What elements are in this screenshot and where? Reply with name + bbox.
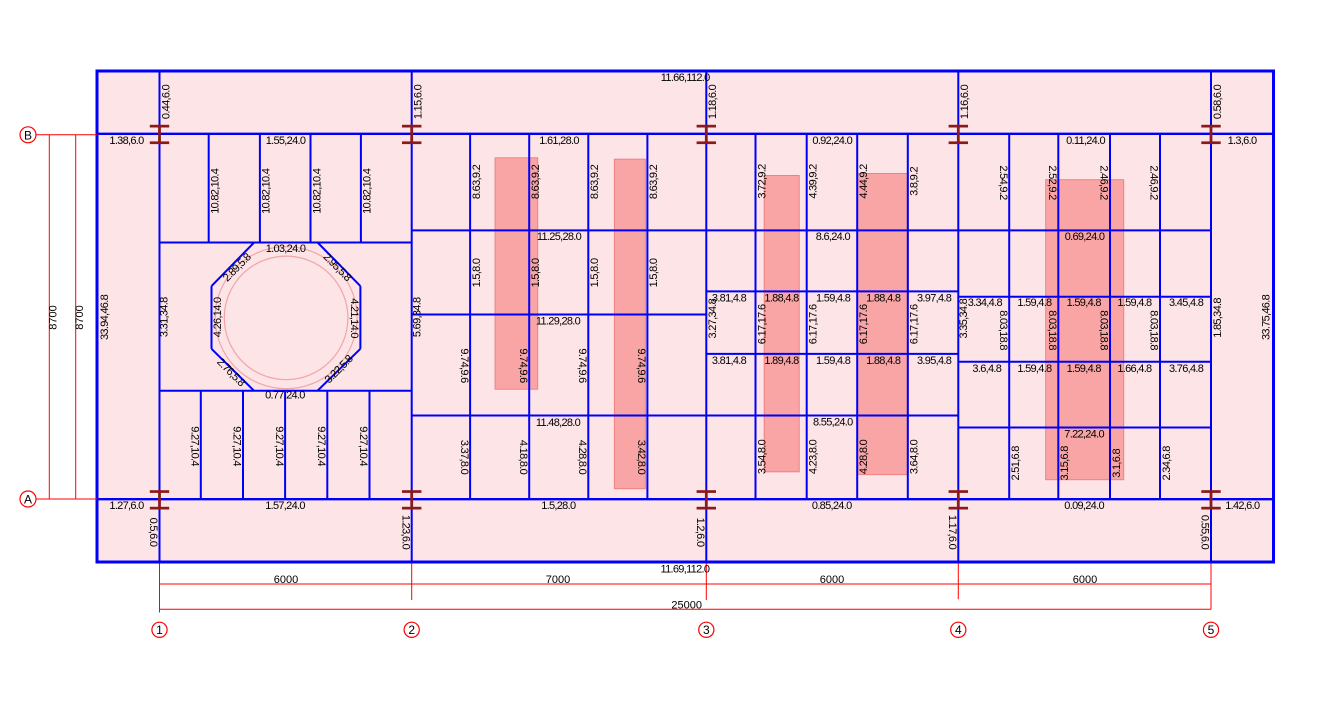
svg-text:3.34,4.8: 3.34,4.8: [968, 297, 1003, 309]
svg-text:2.54,9.2: 2.54,9.2: [997, 165, 1009, 200]
svg-text:1.59,4.8: 1.59,4.8: [816, 355, 851, 367]
svg-text:2: 2: [408, 623, 415, 637]
svg-text:3.31,34.8: 3.31,34.8: [159, 297, 171, 337]
svg-text:0.92,24.0: 0.92,24.0: [812, 135, 852, 147]
svg-text:8.03,18.8: 8.03,18.8: [1098, 310, 1110, 350]
svg-text:1.5,8.0: 1.5,8.0: [648, 258, 660, 287]
svg-text:11.25,28.0: 11.25,28.0: [537, 231, 582, 243]
svg-text:1.23,6.0: 1.23,6.0: [399, 515, 411, 550]
svg-text:3.72,9.2: 3.72,9.2: [756, 164, 768, 199]
svg-text:8.63,9.2: 8.63,9.2: [471, 164, 483, 199]
svg-text:6.17,17.6: 6.17,17.6: [808, 304, 820, 344]
svg-text:6.17,17.6: 6.17,17.6: [858, 304, 870, 344]
svg-text:1.57,24.0: 1.57,24.0: [265, 500, 305, 512]
svg-text:1.5,28.0: 1.5,28.0: [541, 500, 576, 512]
svg-text:10.82,10.4: 10.82,10.4: [261, 168, 273, 214]
svg-text:10.82,10.4: 10.82,10.4: [210, 168, 222, 214]
svg-text:1.18,6.0: 1.18,6.0: [707, 84, 719, 119]
svg-text:0.69,24.0: 0.69,24.0: [1065, 231, 1105, 243]
svg-text:1.59,4.8: 1.59,4.8: [1067, 297, 1102, 309]
svg-text:1.17,6.0: 1.17,6.0: [946, 515, 958, 550]
svg-text:33.75,46.8: 33.75,46.8: [1261, 294, 1273, 340]
svg-text:1: 1: [156, 623, 163, 637]
svg-text:0.55,6.0: 0.55,6.0: [1199, 515, 1211, 550]
svg-text:0.09,24.0: 0.09,24.0: [1064, 500, 1104, 512]
svg-text:4.23,8.0: 4.23,8.0: [808, 439, 820, 474]
svg-text:8.03,18.8: 8.03,18.8: [997, 310, 1009, 350]
svg-text:1.15,6.0: 1.15,6.0: [413, 84, 425, 119]
svg-text:0.77,24.0: 0.77,24.0: [265, 390, 305, 402]
svg-text:11.48,28.0: 11.48,28.0: [536, 417, 581, 429]
svg-text:8.55,24.0: 8.55,24.0: [813, 417, 853, 429]
svg-text:9.27,10.4: 9.27,10.4: [357, 426, 369, 466]
svg-text:3.76,4.8: 3.76,4.8: [1169, 363, 1204, 375]
svg-text:4.26,14.0: 4.26,14.0: [212, 297, 224, 337]
svg-text:1.59,4.8: 1.59,4.8: [1117, 297, 1152, 309]
svg-text:8700: 8700: [48, 305, 60, 329]
svg-text:9.27,10.4: 9.27,10.4: [231, 426, 243, 466]
svg-text:8.63,9.2: 8.63,9.2: [589, 164, 601, 199]
svg-text:4.28,8.0: 4.28,8.0: [858, 439, 870, 474]
svg-text:0.44,6.0: 0.44,6.0: [160, 84, 172, 119]
svg-text:9.74,9.6: 9.74,9.6: [458, 348, 470, 383]
svg-text:1.85,34.8: 1.85,34.8: [1212, 298, 1224, 338]
svg-text:11.69,112.0: 11.69,112.0: [661, 563, 710, 575]
svg-text:8.6,24.0: 8.6,24.0: [816, 231, 851, 243]
svg-text:0.58,6.0: 0.58,6.0: [1212, 84, 1224, 119]
svg-text:4.39,9.2: 4.39,9.2: [808, 164, 820, 199]
svg-text:1.3,6.0: 1.3,6.0: [1228, 135, 1257, 147]
svg-text:1.42,6.0: 1.42,6.0: [1225, 500, 1260, 512]
svg-text:1.88,4.8: 1.88,4.8: [866, 293, 901, 305]
svg-text:1.27,6.0: 1.27,6.0: [109, 500, 144, 512]
svg-text:1.61,28.0: 1.61,28.0: [539, 135, 579, 147]
svg-text:11.66,112.0: 11.66,112.0: [661, 72, 710, 84]
svg-text:1.5,8.0: 1.5,8.0: [530, 258, 542, 287]
svg-text:10.82,10.4: 10.82,10.4: [362, 168, 374, 214]
svg-text:11.29,28.0: 11.29,28.0: [536, 316, 581, 328]
svg-text:2.46,9.2: 2.46,9.2: [1098, 165, 1110, 200]
svg-text:3.45,4.8: 3.45,4.8: [1169, 297, 1204, 309]
svg-text:A: A: [24, 493, 32, 507]
svg-text:3: 3: [703, 623, 710, 637]
svg-text:9.74,9.6: 9.74,9.6: [576, 348, 588, 383]
svg-text:1.03,24.0: 1.03,24.0: [266, 243, 306, 255]
svg-text:4.18,8.0: 4.18,8.0: [517, 440, 529, 475]
svg-text:8.63,9.2: 8.63,9.2: [648, 164, 660, 199]
svg-text:6.17,17.6: 6.17,17.6: [756, 304, 768, 344]
svg-text:3.42,8.0: 3.42,8.0: [635, 440, 647, 475]
svg-text:0.5,6.0: 0.5,6.0: [147, 518, 159, 547]
svg-text:3.64,8.0: 3.64,8.0: [909, 439, 921, 474]
svg-text:2.34,6.8: 2.34,6.8: [1161, 446, 1173, 481]
svg-text:4.28,8.0: 4.28,8.0: [576, 440, 588, 475]
svg-text:1.59,4.8: 1.59,4.8: [1017, 297, 1052, 309]
svg-text:6000: 6000: [820, 574, 844, 586]
svg-text:1.89,4.8: 1.89,4.8: [764, 355, 799, 367]
svg-text:6000: 6000: [1073, 574, 1097, 586]
svg-text:1.38,6.0: 1.38,6.0: [109, 135, 144, 147]
svg-text:8.63,9.2: 8.63,9.2: [530, 164, 542, 199]
svg-text:B: B: [24, 128, 32, 142]
svg-text:1.88,4.8: 1.88,4.8: [764, 293, 799, 305]
svg-text:3.15,6.8: 3.15,6.8: [1059, 446, 1071, 481]
svg-text:33.94,46.8: 33.94,46.8: [99, 294, 111, 340]
svg-text:1.2,6.0: 1.2,6.0: [694, 518, 706, 547]
svg-text:2.51,6.8: 2.51,6.8: [1010, 446, 1022, 481]
svg-text:3.97,4.8: 3.97,4.8: [917, 293, 952, 305]
svg-text:3.8,9.2: 3.8,9.2: [909, 167, 921, 196]
svg-text:1.59,4.8: 1.59,4.8: [1067, 363, 1102, 375]
svg-text:0.11,24.0: 0.11,24.0: [1066, 135, 1105, 147]
svg-text:9.27,10.4: 9.27,10.4: [189, 426, 201, 466]
svg-text:5.69,34.8: 5.69,34.8: [412, 297, 424, 337]
svg-text:3.1,6.8: 3.1,6.8: [1111, 448, 1123, 477]
svg-text:6000: 6000: [274, 574, 298, 586]
svg-text:8700: 8700: [74, 305, 86, 329]
svg-text:25000: 25000: [671, 599, 702, 611]
svg-text:1.16,6.0: 1.16,6.0: [959, 84, 971, 119]
svg-text:2.46,9.2: 2.46,9.2: [1148, 165, 1160, 200]
svg-text:9.74,9.6: 9.74,9.6: [517, 348, 529, 383]
svg-text:9.74,9.6: 9.74,9.6: [635, 348, 647, 383]
svg-text:7000: 7000: [546, 574, 570, 586]
svg-text:3.37,8.0: 3.37,8.0: [458, 440, 470, 475]
svg-text:4.44,9.2: 4.44,9.2: [858, 164, 870, 199]
svg-text:1.66,4.8: 1.66,4.8: [1117, 363, 1152, 375]
svg-text:1.5,8.0: 1.5,8.0: [471, 258, 483, 287]
svg-text:8.03,18.8: 8.03,18.8: [1046, 310, 1058, 350]
svg-text:4.21,14.0: 4.21,14.0: [348, 298, 360, 338]
svg-text:9.27,10.4: 9.27,10.4: [315, 426, 327, 466]
svg-text:10.82,10.4: 10.82,10.4: [311, 168, 323, 214]
svg-text:1.55,24.0: 1.55,24.0: [266, 135, 306, 147]
svg-text:5: 5: [1208, 623, 1215, 637]
svg-text:8.03,18.8: 8.03,18.8: [1148, 310, 1160, 350]
svg-text:1.5,8.0: 1.5,8.0: [589, 258, 601, 287]
svg-text:0.85,24.0: 0.85,24.0: [812, 500, 852, 512]
svg-text:3.81,4.8: 3.81,4.8: [712, 355, 747, 367]
svg-text:7.22,24.0: 7.22,24.0: [1064, 429, 1104, 441]
svg-text:1.59,4.8: 1.59,4.8: [1017, 363, 1052, 375]
svg-text:1.88,4.8: 1.88,4.8: [866, 355, 901, 367]
svg-text:3.95,4.8: 3.95,4.8: [917, 355, 952, 367]
svg-text:6.17,17.6: 6.17,17.6: [909, 304, 921, 344]
svg-text:2.52,9.2: 2.52,9.2: [1046, 165, 1058, 200]
svg-text:3.81,4.8: 3.81,4.8: [712, 293, 747, 305]
svg-text:4: 4: [955, 623, 962, 637]
svg-text:9.27,10.4: 9.27,10.4: [273, 426, 285, 466]
svg-text:3.6,4.8: 3.6,4.8: [972, 363, 1001, 375]
svg-text:1.59,4.8: 1.59,4.8: [816, 293, 851, 305]
svg-text:3.54,8.0: 3.54,8.0: [756, 439, 768, 474]
